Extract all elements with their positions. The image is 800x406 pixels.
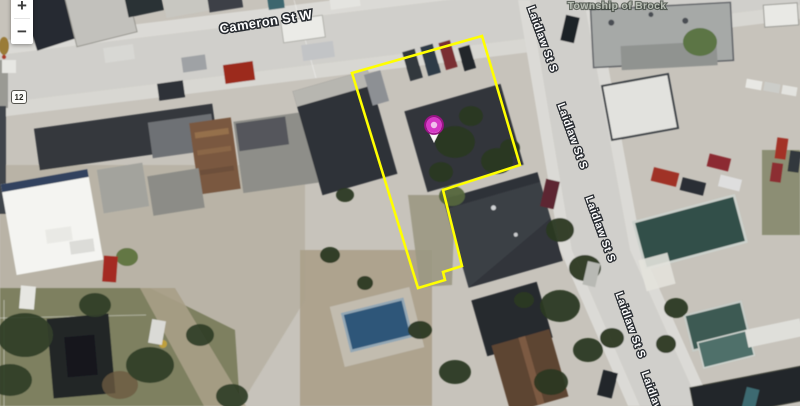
zoom-control: + − — [11, 0, 33, 44]
satellite-map: Cameron St W Laidlaw St S Laidlaw St S L… — [0, 0, 800, 406]
zoom-in-button[interactable]: + — [11, 0, 33, 18]
route-badge-12: 12 — [11, 90, 27, 104]
satellite-imagery — [0, 0, 800, 406]
area-label-township: Township of Brock — [568, 0, 667, 12]
map-canvas[interactable]: Cameron St W Laidlaw St S Laidlaw St S L… — [0, 0, 800, 406]
marker-dot — [431, 122, 437, 128]
zoom-out-button[interactable]: − — [11, 19, 33, 44]
